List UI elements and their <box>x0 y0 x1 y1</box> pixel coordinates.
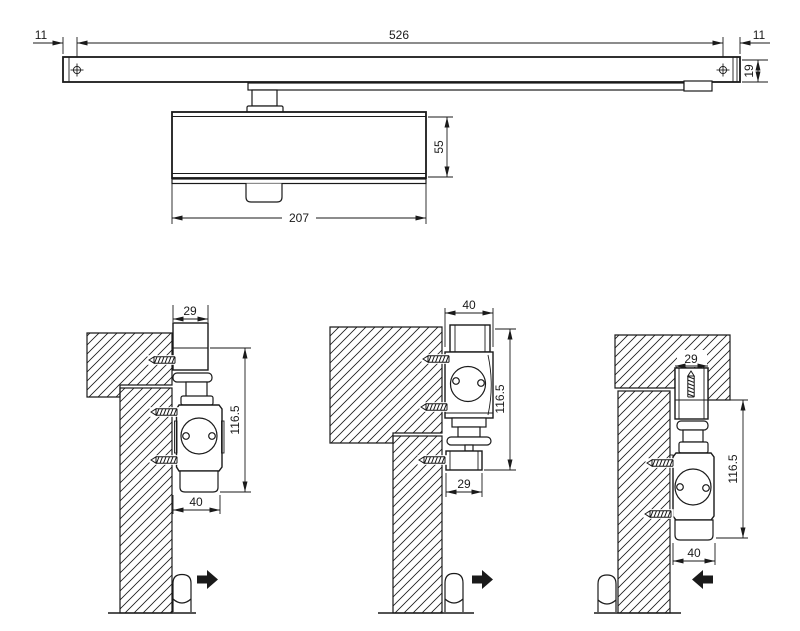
install-view-1: 29 116.5 40 <box>87 304 251 613</box>
dim-rail-height: 19 <box>742 64 756 78</box>
install-view-2: 40 116.5 29 <box>330 298 516 613</box>
mounting-screw <box>150 407 180 417</box>
dim-body-height: 55 <box>432 140 446 154</box>
swing-direction-arrow-icon <box>472 570 493 589</box>
spindle <box>186 382 207 397</box>
door-section <box>618 391 670 613</box>
dim-body-depth-2: 40 <box>462 298 476 312</box>
door-handle <box>598 575 616 612</box>
closer-body-end <box>670 453 714 540</box>
door-handle <box>445 574 463 613</box>
frame-section <box>615 335 730 400</box>
spindle-collar <box>452 418 486 427</box>
mounting-screw <box>422 354 452 364</box>
slide-arm <box>247 81 712 113</box>
swing-direction-arrow-icon <box>197 570 218 589</box>
spindle <box>252 90 277 106</box>
door-closer-technical-drawing: 11 526 11 19 <box>0 0 800 631</box>
spindle-collar <box>181 396 213 405</box>
spindle <box>458 427 480 437</box>
dim-rail-depth-3: 29 <box>684 352 698 366</box>
dim-body-length: 207 <box>289 211 309 225</box>
door-section <box>120 388 172 613</box>
mounting-screw <box>418 455 448 465</box>
install-view-3: 29 116.5 40 <box>594 335 748 613</box>
slider-flange <box>447 437 491 445</box>
slider-flange <box>173 373 212 382</box>
arm-slider-shoe <box>684 81 712 91</box>
dim-left-end-offset: 11 <box>35 28 48 42</box>
slider-pin <box>465 445 473 451</box>
drawing-svg: 11 526 11 19 <box>0 0 800 631</box>
dim-hole-spacing: 526 <box>389 28 409 42</box>
swing-direction-arrow-icon <box>692 570 713 589</box>
slider-flange <box>677 421 708 430</box>
mounting-screw <box>644 509 674 519</box>
dim-right-end-offset: 11 <box>753 28 766 42</box>
mounting-screw <box>150 455 180 465</box>
valve-cover <box>246 184 282 203</box>
frame-section <box>330 327 442 443</box>
dim-mount-height-3: 116.5 <box>726 454 740 483</box>
spindle-collar <box>679 442 708 453</box>
dim-rail-depth-1: 29 <box>183 304 197 318</box>
mounting-screw <box>646 458 676 468</box>
mounting-screw <box>148 355 178 365</box>
spindle <box>683 430 703 442</box>
rail-channel-end <box>173 323 208 370</box>
top-view: 11 526 11 19 <box>33 28 770 225</box>
door-handle <box>173 575 191 613</box>
mounting-plate <box>172 179 426 184</box>
rail-channel-end <box>446 451 482 470</box>
mounting-screw-vertical <box>686 370 696 400</box>
slide-rail <box>63 57 740 82</box>
dim-body-depth-1: 40 <box>189 495 203 509</box>
closer-body <box>172 112 426 202</box>
mounting-screw <box>420 402 450 412</box>
dim-mount-height-2: 116.5 <box>493 384 507 413</box>
closer-body-end <box>175 405 225 492</box>
closer-body-end <box>445 325 493 418</box>
dim-body-depth-3: 40 <box>687 546 701 560</box>
frame-section <box>87 333 172 397</box>
dim-rail-depth-2: 29 <box>457 477 471 491</box>
dim-mount-height-1: 116.5 <box>228 405 242 434</box>
